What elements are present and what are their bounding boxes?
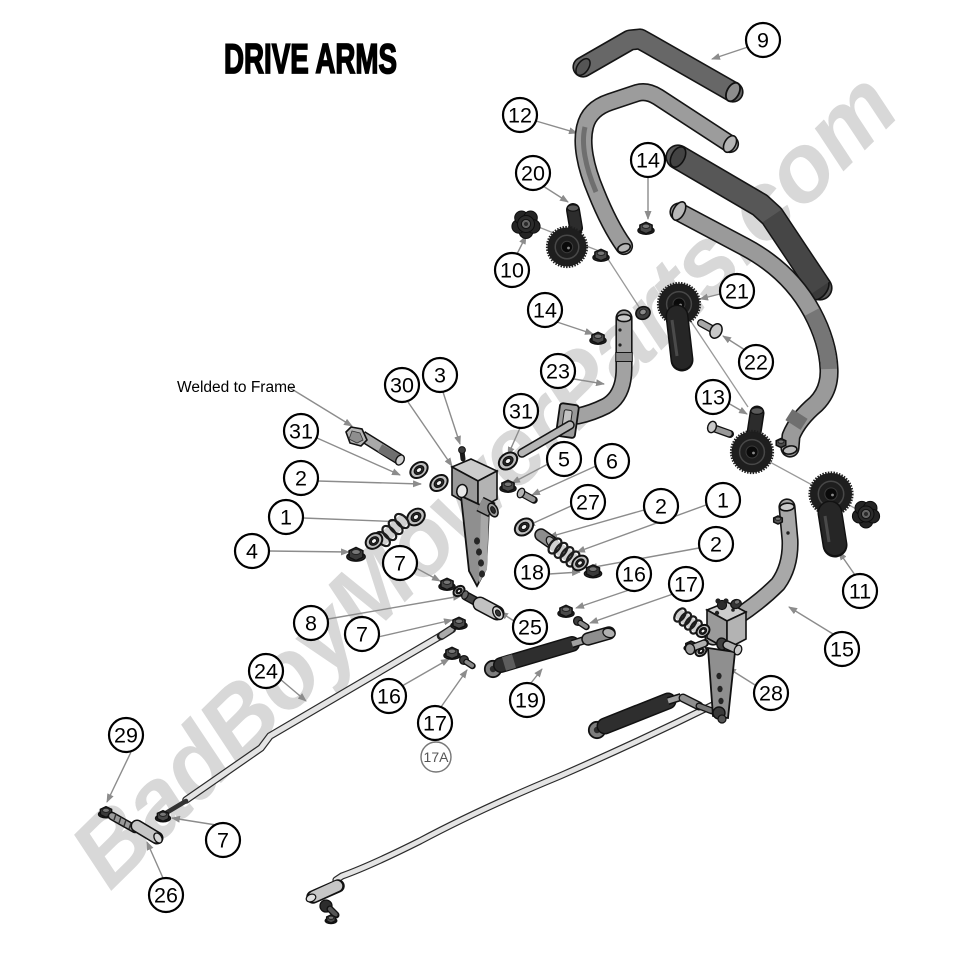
svg-text:3: 3: [434, 364, 446, 388]
svg-text:13: 13: [701, 386, 725, 410]
svg-text:19: 19: [515, 689, 539, 713]
svg-text:27: 27: [576, 491, 600, 515]
svg-text:2: 2: [710, 533, 722, 557]
svg-text:5: 5: [558, 448, 570, 472]
svg-text:20: 20: [521, 162, 545, 186]
svg-text:31: 31: [289, 420, 313, 444]
svg-text:15: 15: [830, 638, 854, 662]
svg-text:17: 17: [674, 573, 698, 597]
svg-text:4: 4: [246, 540, 258, 564]
svg-text:10: 10: [500, 259, 524, 283]
svg-text:31: 31: [509, 400, 533, 424]
svg-text:16: 16: [622, 563, 646, 587]
svg-text:18: 18: [520, 561, 544, 585]
svg-text:9: 9: [757, 29, 769, 53]
svg-text:DRIVE ARMS: DRIVE ARMS: [224, 35, 397, 82]
svg-text:23: 23: [546, 360, 570, 384]
svg-text:24: 24: [254, 660, 278, 684]
svg-text:17: 17: [423, 712, 447, 736]
svg-text:25: 25: [518, 616, 542, 640]
svg-text:30: 30: [390, 374, 414, 398]
svg-text:11: 11: [849, 580, 871, 604]
svg-text:28: 28: [759, 682, 783, 706]
svg-text:8: 8: [305, 612, 317, 636]
svg-text:6: 6: [606, 450, 618, 474]
svg-text:17A: 17A: [424, 749, 450, 765]
svg-text:2: 2: [655, 495, 667, 519]
svg-text:26: 26: [154, 884, 178, 908]
svg-text:14: 14: [636, 149, 660, 173]
svg-text:7: 7: [394, 552, 406, 576]
svg-text:14: 14: [533, 299, 557, 323]
svg-text:22: 22: [744, 351, 768, 375]
svg-text:2: 2: [295, 467, 307, 491]
svg-text:12: 12: [508, 104, 532, 128]
svg-text:16: 16: [377, 685, 401, 709]
svg-text:1: 1: [717, 489, 729, 513]
svg-text:1: 1: [280, 506, 292, 530]
svg-text:7: 7: [217, 829, 229, 853]
svg-text:21: 21: [725, 280, 749, 304]
svg-text:7: 7: [356, 623, 368, 647]
svg-text:Welded to Frame: Welded to Frame: [177, 379, 296, 396]
svg-text:29: 29: [114, 724, 138, 748]
